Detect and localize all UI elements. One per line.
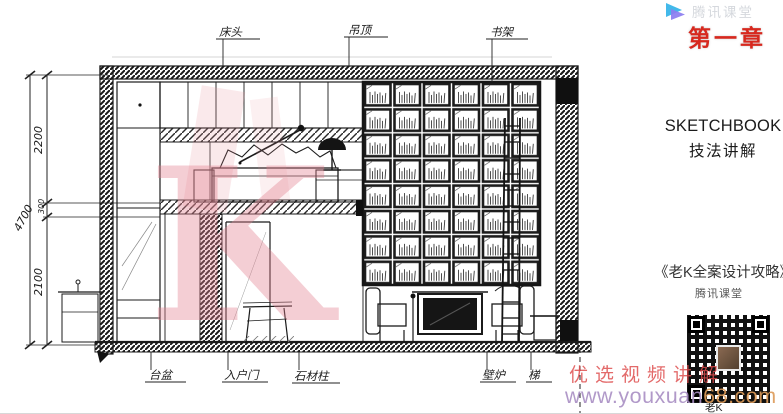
label-bedhead: 床头 [219, 25, 242, 39]
lesson-title-zh: 技法讲解 [662, 139, 783, 161]
video-frame: 2200 300 2100 4700 床头 吊顶 书架 [0, 0, 783, 414]
chapter-title: 第一章 [688, 19, 766, 53]
url-watermark-prefix: www.youxuan [565, 384, 703, 408]
dim-total-label: 4700 [11, 203, 36, 234]
video-watermark-text: 优选视频讲解 [569, 360, 725, 387]
tencent-classroom-icon [666, 1, 687, 21]
label-bookshelf: 书架 [490, 25, 514, 39]
label-ladder: 梯 [528, 368, 541, 382]
fireplace-zone [366, 285, 558, 342]
dim-bottom-label: 2100 [32, 268, 45, 296]
qr-finder-topright [752, 316, 769, 333]
label-ceiling: 吊顶 [348, 23, 373, 37]
url-watermark-suffix: 68.com [703, 384, 777, 408]
qr-finder-topleft [688, 316, 705, 333]
lesson-title-en: SKETCHBOOK [662, 117, 783, 136]
label-entry-door: 入户门 [224, 368, 260, 382]
course-platform: 腾讯课堂 [695, 285, 783, 301]
dim-mid-label: 300 [37, 199, 46, 214]
course-info-block: 《老K全案设计攻略》 腾讯课堂 [654, 261, 783, 301]
course-title: 《老K全案设计攻略》 [654, 261, 783, 282]
platform-logo: 腾讯课堂 [666, 1, 754, 21]
washbasin-unit [58, 280, 102, 342]
interior-elevation-sketch: 2200 300 2100 4700 床头 吊顶 书架 [0, 0, 783, 414]
platform-logo-text: 腾讯课堂 [692, 1, 754, 21]
dim-top-label: 2200 [32, 126, 45, 154]
label-stone-column: 石材柱 [294, 369, 330, 383]
label-basin: 台盆 [149, 368, 173, 382]
url-watermark: www.youxuan68.com [565, 384, 777, 409]
label-fireplace: 壁炉 [482, 368, 506, 382]
lesson-title-block: SKETCHBOOK 技法讲解 [662, 117, 783, 161]
big-k-watermark: K [148, 140, 332, 352]
